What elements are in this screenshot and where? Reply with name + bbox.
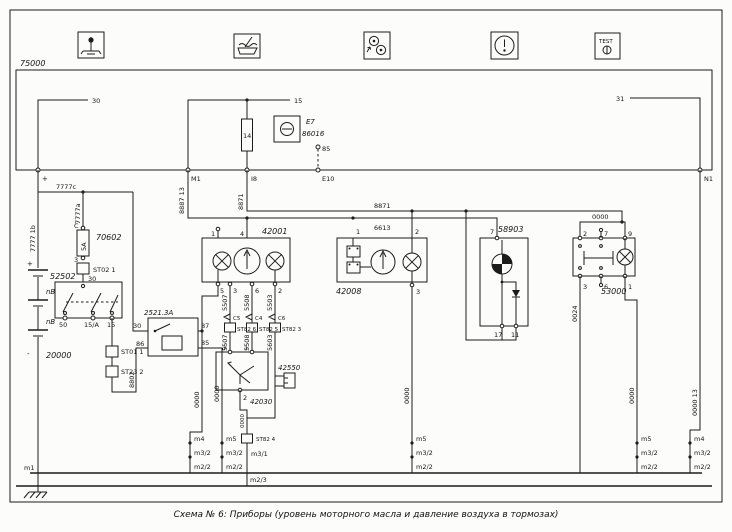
e7-name: E7 [306, 118, 315, 126]
g2-m5: m5 [226, 435, 236, 443]
connector-st82-6 [225, 323, 236, 332]
sw53000-pin-7: 7 [604, 230, 608, 238]
connector-st23 [106, 366, 118, 377]
icon-brake-pressure-gauges [364, 32, 390, 59]
icon-central-warning [491, 32, 518, 59]
marker-c6: C6 [278, 316, 286, 322]
s42030-pin-3: 3 [222, 344, 226, 352]
marker-c4: C4 [255, 316, 263, 322]
n1-ground-run: 0000 13 [690, 170, 700, 473]
icon-oil-level-sensor [78, 32, 104, 58]
relay-pin-30: 30 [133, 322, 141, 330]
terminal-n1: N1 [704, 175, 713, 183]
wire-5508-a: 5508 [243, 294, 251, 311]
power-box-75000: 75000 30 15 14 E7 86016 85 31 + [16, 59, 713, 183]
wire-8871v-label: 8871 [237, 193, 245, 210]
g6-m22: m2/2 [694, 463, 711, 471]
fuse-14-label: 14 [243, 132, 251, 140]
gauge-42008: 42008 1 2 3 0000 [336, 211, 427, 473]
relay-pin-86: 86 [136, 340, 144, 348]
terminal-m1: M1 [191, 175, 201, 183]
sw52502-pin-15: 15 [107, 321, 115, 329]
connector-st82-6-label: ST82 6 [237, 327, 257, 333]
power-box-id: 75000 [20, 59, 45, 68]
sw53000-pin-9: 9 [628, 230, 632, 238]
connector-st82-3-label: ST82 3 [282, 327, 302, 333]
battery-nb-2: nB [46, 318, 55, 326]
fuse-70602: 7777a C 5A 70602 3 ST02 1 30 [74, 192, 121, 283]
fuse70602-pin-c: C [74, 222, 79, 230]
e7-pin-85: 85 [322, 145, 330, 153]
wire-8871-label: 8871 [374, 202, 391, 210]
wire-5603-label: 5603 [266, 334, 274, 351]
connector-42550: 42550 [275, 364, 301, 388]
wire-5507-a: 5507 [221, 294, 229, 311]
sw52502-pin-50: 50 [59, 321, 67, 329]
sw53000-gnd-wire: 0000 [628, 387, 636, 404]
g1-m32: m3/2 [194, 449, 211, 457]
sw53000-pin-3: 3 [583, 283, 587, 291]
wire-5503-label: 5503 [266, 294, 274, 311]
diagram-frame [10, 10, 722, 502]
sw53000-pin-6: 6 [604, 283, 608, 291]
battery-minus: - [27, 350, 30, 358]
feed-rails: 8887 13 8871 8871 6613 [178, 170, 622, 238]
connector-st01-label: ST01 1 [121, 348, 144, 356]
g6-m32: m3/2 [694, 449, 711, 457]
g5-m22: m2/2 [641, 463, 658, 471]
terminal-e10: E10 [322, 175, 334, 183]
wire-7777c-label: 7777c [56, 183, 77, 191]
g3-st82: ST82 4 [256, 437, 276, 443]
schematic-page: TEST 75000 30 15 14 E7 86016 85 31 [0, 0, 732, 532]
ground-symbol [24, 492, 47, 498]
g5-m32: m3/2 [641, 449, 658, 457]
g42008-pin-3: 3 [416, 288, 420, 296]
ground-group-6: m4 m3/2 m2/2 [688, 435, 710, 471]
s42030-pin-2: 2 [243, 394, 247, 402]
g6-m4: m4 [694, 435, 704, 443]
wire-42001-pin5-ground [190, 288, 218, 473]
g2-m32: m3/2 [226, 449, 243, 457]
g1-m4: m4 [194, 435, 204, 443]
sw53000-jumper: 0000 [592, 213, 609, 221]
icon-test-connector: TEST [595, 33, 620, 59]
cl42001-pin-2: 2 [278, 287, 282, 295]
ground-group-1: m4 m3/2 m2/2 [188, 435, 210, 471]
fuse70602-amp: 5A [80, 242, 88, 251]
battery-plus: + [27, 260, 33, 268]
e7-code: 86016 [302, 130, 325, 138]
s42030-id: 42030 [250, 398, 273, 406]
wire-0024-label: 0024 [571, 305, 579, 322]
connector-st02-label: ST02 1 [93, 266, 116, 274]
battery-id: 20000 [46, 351, 71, 360]
g3-m31: m3/1 [251, 450, 268, 458]
relay-id: 2521.3A [144, 309, 173, 317]
sw53000-pin-2: 2 [583, 230, 587, 238]
wire-8887-label: 8887 13 [178, 187, 186, 214]
switch-53000: 53000 0000 2 7 9 3 6 1 0024 0000 [571, 213, 637, 473]
g4-m5: m5 [416, 435, 426, 443]
g1-m22: m2/2 [194, 463, 211, 471]
relay-ground-wire: 0000 [213, 385, 221, 402]
g5-m5: m5 [641, 435, 651, 443]
component-e7-86016: E7 86016 85 [274, 116, 330, 170]
g2-m22: m2/2 [226, 463, 243, 471]
test-icon-label: TEST [598, 39, 613, 45]
cl42001-pin-5: 5 [220, 287, 224, 295]
terminal-i8: I8 [251, 175, 257, 183]
icon-oil-pan [234, 34, 260, 58]
connector-st02 [77, 263, 89, 274]
cl42001-pin-3: 3 [233, 287, 237, 295]
cl42001-pin-1: 1 [211, 230, 215, 238]
wire-8802-label: 8802 [128, 371, 136, 388]
cl42001-pin-6: 6 [255, 287, 259, 295]
wire-42001-gnd-label: 0000 [193, 391, 201, 408]
connector-st82-5-label: ST82 5 [259, 327, 279, 333]
relay-2521-3a: 2521.3A 30 86 87 85 0000 [133, 192, 222, 473]
g4-m22: m2/2 [416, 463, 433, 471]
battery-nb-1: nB [46, 288, 55, 296]
cluster-42001: 42001 1 4 5 3 6 2 [202, 218, 290, 295]
b58903-pin-11: 11 [511, 331, 519, 339]
b58903-id: 58903 [498, 225, 523, 234]
c42550-id: 42550 [278, 364, 301, 372]
g42008-gnd-wire: 0000 [403, 387, 411, 404]
b58903-pin-7: 7 [490, 228, 494, 236]
wiring-diagram-canvas: TEST 75000 30 15 14 E7 86016 85 31 [0, 0, 732, 532]
g42008-id: 42008 [336, 287, 361, 296]
s42030-pin-1: 1 [244, 344, 248, 352]
g4-m32: m3/2 [416, 449, 433, 457]
wire-7777-1b-label: 7777 1b [29, 225, 37, 252]
wire-0000-13-label: 0000 13 [691, 389, 699, 416]
cl42001-id: 42001 [262, 227, 287, 236]
g3-m23: m2/3 [250, 476, 267, 484]
g42008-pin-1: 1 [356, 228, 360, 236]
wire-6613-label: 6613 [374, 224, 391, 232]
ground-group-4: m5 m3/2 m2/2 [410, 435, 432, 471]
ground-group-2: m5 m3/2 m2/2 [220, 435, 242, 471]
ground-buses [16, 473, 712, 498]
wire-30-label: 30 [92, 97, 100, 105]
g42008-pin-2: 2 [415, 228, 419, 236]
wire-7777a-label: 7777a [74, 203, 82, 224]
diagram-caption: Схема № 6: Приборы (уровень моторного ма… [0, 510, 732, 520]
wire-15-label: 15 [294, 97, 302, 105]
marker-c5: C5 [233, 316, 241, 322]
connector-st01 [106, 346, 118, 357]
ground-group-5: m5 m3/2 m2/2 [635, 435, 657, 471]
sw52502-id: 52502 [50, 272, 75, 281]
cl42001-pin-4: 4 [240, 230, 244, 238]
connector-st82-4 [242, 434, 253, 443]
b58903-pin-17: 17 [494, 331, 502, 339]
ground-m1-label: m1 [24, 464, 34, 472]
s42030-gnd-wire: 0000 [240, 414, 246, 428]
sw52502-pin-15a: 15/A [84, 321, 99, 329]
wire-31-label: 31 [616, 95, 624, 103]
sw53000-pin-1: 1 [628, 283, 632, 291]
terminal-plus: + [42, 175, 48, 183]
fuse70602-id: 70602 [96, 233, 121, 242]
